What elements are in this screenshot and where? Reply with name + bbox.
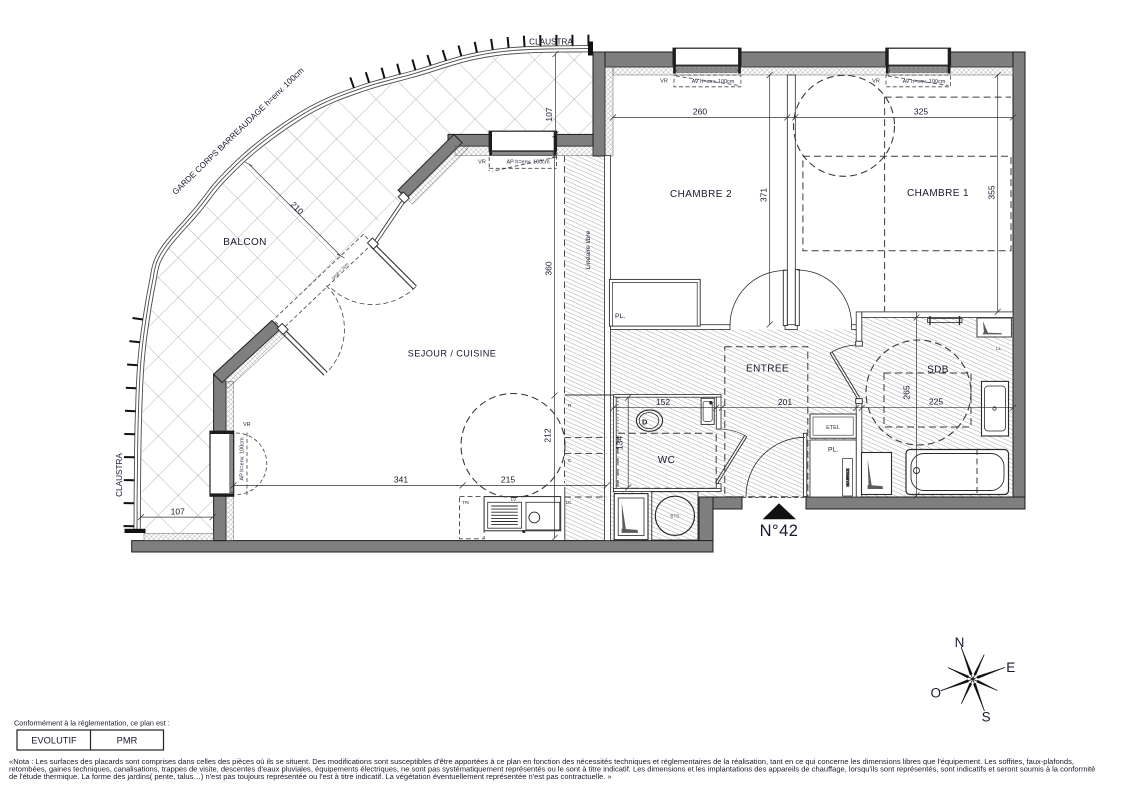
svg-text:AV h=env. 100cm: AV h=env. 100cm	[692, 79, 735, 85]
svg-text:AP h=env. 100cm: AP h=env. 100cm	[240, 437, 246, 480]
svg-text:E: E	[1006, 660, 1015, 675]
svg-text:VR: VR	[872, 79, 880, 85]
svg-text:Linéaire libre: Linéaire libre	[585, 230, 592, 269]
svg-text:PL.: PL.	[615, 313, 625, 320]
svg-text:CHAMBRE 1: CHAMBRE 1	[907, 188, 969, 199]
svg-text:212: 212	[543, 428, 553, 442]
svg-text:1C: 1C	[566, 500, 573, 505]
svg-text:SEJOUR / CUISINE: SEJOUR / CUISINE	[408, 349, 497, 359]
svg-text:341: 341	[394, 475, 408, 485]
svg-text:355: 355	[987, 185, 997, 199]
svg-text:134: 134	[615, 436, 625, 450]
svg-text:107: 107	[544, 107, 554, 121]
svg-text:201: 201	[778, 397, 792, 407]
svg-text:de l'étude thermique. La forme: de l'étude thermique. La forme des jardi…	[9, 772, 612, 781]
svg-text:PL.: PL.	[828, 447, 838, 454]
svg-text:Conformément à la réglementati: Conformément à la réglementation, ce pla…	[14, 719, 170, 728]
svg-text:225: 225	[929, 397, 943, 407]
svg-text:AV h=env. 100cm: AV h=env. 100cm	[903, 79, 946, 85]
svg-text:325: 325	[914, 107, 928, 117]
svg-text:BALCON: BALCON	[223, 237, 267, 248]
svg-text:ENTREE: ENTREE	[746, 364, 789, 375]
svg-text:O: O	[930, 686, 941, 701]
svg-text:VR: VR	[478, 160, 486, 166]
svg-text:260: 260	[693, 107, 707, 117]
svg-text:TRI: TRI	[462, 500, 469, 505]
svg-text:S: S	[982, 710, 991, 725]
svg-text:360: 360	[544, 261, 554, 275]
svg-text:371: 371	[759, 188, 769, 202]
svg-text:WC: WC	[658, 455, 675, 466]
svg-text:152: 152	[656, 397, 670, 407]
svg-text:SDB: SDB	[927, 365, 949, 376]
svg-text:PMR: PMR	[117, 736, 138, 746]
svg-text:VR: VR	[660, 79, 668, 85]
svg-text:AP h=env. 100cm: AP h=env. 100cm	[506, 160, 549, 166]
svg-text:N°42: N°42	[760, 522, 799, 540]
svg-text:CLAUSTRA: CLAUSTRA	[529, 38, 573, 47]
svg-text:107: 107	[171, 507, 185, 517]
svg-text:CHAMBRE 2: CHAMBRE 2	[670, 189, 732, 200]
svg-text:ETEL: ETEL	[826, 425, 840, 431]
svg-text:VR: VR	[243, 422, 251, 428]
svg-text:265: 265	[902, 385, 912, 399]
svg-text:CLAUSTRA: CLAUSTRA	[115, 453, 124, 497]
svg-text:EVOLUTIF: EVOLUTIF	[31, 736, 77, 746]
svg-text:LL: LL	[996, 346, 1002, 351]
svg-text:BTS: BTS	[670, 514, 679, 519]
svg-text:NOURRICE: NOURRICE	[846, 468, 850, 487]
svg-text:N: N	[955, 635, 965, 650]
svg-text:215: 215	[501, 475, 515, 485]
svg-text:D: D	[642, 418, 648, 427]
